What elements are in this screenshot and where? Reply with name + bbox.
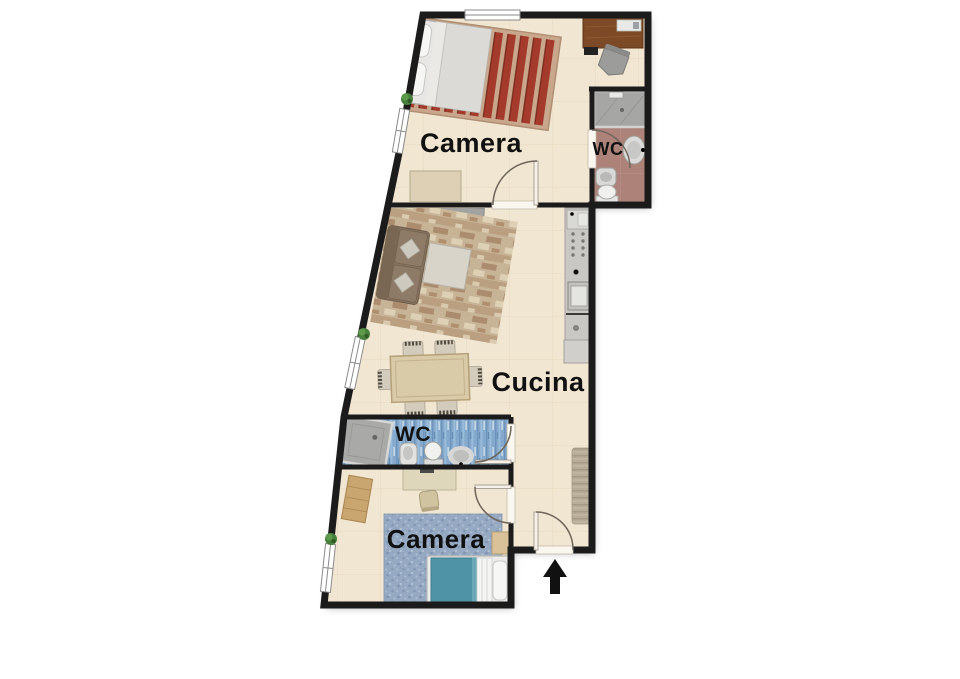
toilet	[596, 185, 618, 204]
waste-bin	[584, 47, 598, 55]
bidet	[400, 443, 417, 466]
wc-top-label: WC	[593, 139, 624, 159]
desk	[403, 468, 456, 490]
desk	[583, 17, 643, 48]
bedside-table	[492, 532, 509, 554]
kitchen-sink-basin	[568, 282, 590, 310]
entrance-arrow-icon	[543, 559, 567, 594]
shower	[594, 91, 646, 127]
desk-chair	[419, 490, 440, 512]
single-bed	[427, 556, 509, 604]
bedroom-bottom-label: Camera	[387, 524, 485, 554]
wc-bottom-label: WC	[395, 423, 431, 446]
bidet	[596, 168, 616, 186]
potted-plant	[325, 533, 337, 545]
floor-plan-page: Camera WC Cucina WC Camera	[0, 0, 960, 679]
potted-plant	[401, 93, 413, 105]
window	[465, 10, 520, 20]
kitchen-living-label: Cucina	[491, 367, 585, 397]
dresser	[410, 171, 461, 202]
floor-plan-svg: Camera WC Cucina WC Camera	[0, 0, 960, 679]
coffee-table	[423, 243, 471, 290]
potted-plant	[358, 328, 370, 340]
kitchen-counter	[564, 208, 592, 363]
bedroom-top-label: Camera	[420, 128, 523, 158]
hallway-runner	[572, 448, 591, 524]
sink	[448, 446, 474, 466]
shower	[340, 416, 393, 469]
